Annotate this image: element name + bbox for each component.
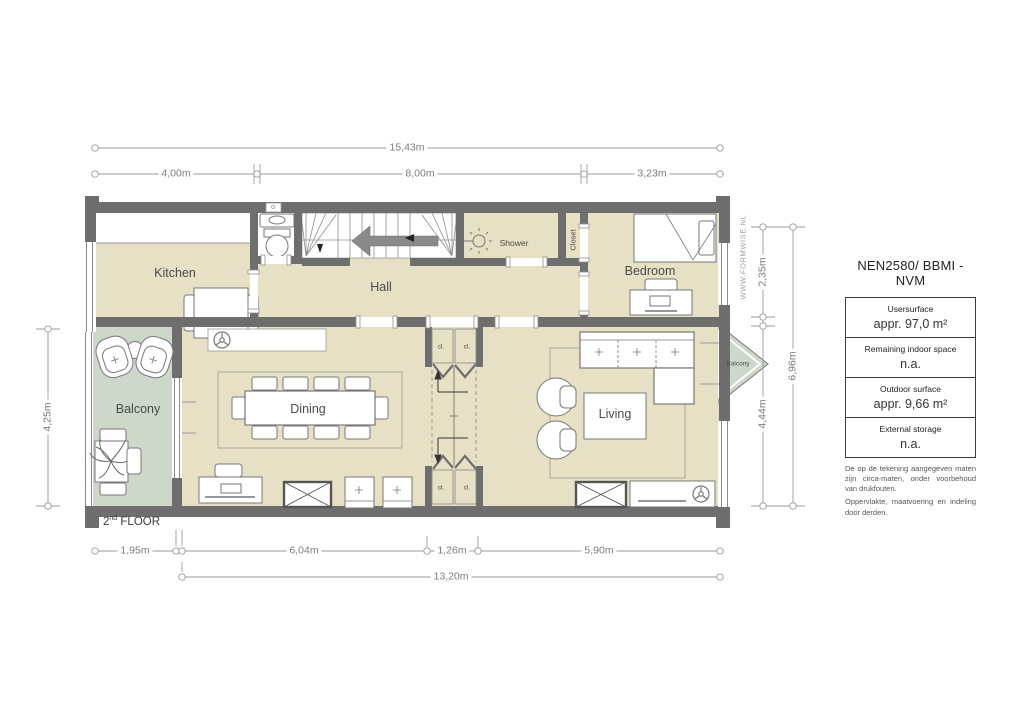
room-label-kitchen: Kitchen — [154, 266, 196, 280]
closet-label-cl: cl. — [464, 485, 471, 492]
cabinet — [630, 481, 715, 507]
lounge-chair — [537, 378, 576, 416]
closet-label-cl: cl. — [464, 344, 471, 351]
room-label-closet: Closet — [569, 229, 578, 250]
patio-chair-small — [100, 429, 126, 441]
corner-block — [85, 196, 99, 213]
legend-table: Usersurface appr. 97,0 m² Remaining indo… — [845, 297, 976, 458]
closet-label-cl: cl. — [438, 344, 445, 351]
legend-panel: NEN2580/ BBMI - NVM Usersurface appr. 97… — [845, 258, 976, 521]
floorplan-page: 15,43m 4,00m 8,00m 3,23m 4,25m 2,35m 4,4… — [0, 0, 1024, 724]
room-label-living: Living — [599, 407, 632, 421]
dim-bottom-seg-4: 5,90m — [581, 545, 616, 556]
balcony-railing — [84, 332, 93, 506]
room-label-dining: Dining — [290, 402, 325, 416]
dim-top-seg-1: 4,00m — [158, 168, 193, 179]
radiator — [576, 482, 626, 507]
dim-right-seg-2: 4,44m — [757, 396, 768, 431]
corner-block — [716, 196, 730, 213]
watermark: WWW.FORMWISE.NL — [739, 215, 748, 300]
dim-right-total: 6,96m — [787, 348, 798, 383]
room-label-shower: Shower — [500, 238, 529, 248]
wall-fixture — [266, 203, 281, 212]
legend-row-usersurface: Usersurface appr. 97,0 m² — [846, 298, 975, 337]
living-window — [718, 421, 731, 507]
dim-bottom-seg-2: 6,04m — [286, 545, 321, 556]
floor-title: 2nd FLOOR — [103, 515, 160, 528]
pillow — [699, 221, 714, 255]
legend-disclaimer: De op de tekening aangegeven maten zijn … — [845, 464, 976, 518]
corner-block — [716, 506, 730, 528]
dim-bottom-seg-1: 1,95m — [117, 545, 152, 556]
legend-title: NEN2580/ BBMI - NVM — [845, 258, 976, 288]
dim-bottom-seg-3: 1,26m — [434, 545, 469, 556]
patio-chair-small — [100, 483, 126, 495]
legend-row-external-storage: External storage n.a. — [846, 417, 975, 457]
balcony-door-window — [172, 378, 182, 478]
lounge-chair — [537, 421, 576, 459]
dim-left: 4,25m — [42, 399, 53, 434]
room-label-balcony-right: Balcony — [726, 361, 749, 368]
dim-top-seg-2: 8,00m — [402, 168, 437, 179]
kitchen-window — [83, 242, 96, 332]
legend-row-remaining-indoor: Remaining indoor space n.a. — [846, 337, 975, 377]
corner-block — [85, 506, 99, 528]
closet-label-cl: cl. — [438, 485, 445, 492]
room-label-hall: Hall — [370, 280, 392, 294]
legend-row-outdoor-surface: Outdoor surface appr. 9,66 m² — [846, 377, 975, 417]
room-label-balcony-left: Balcony — [116, 402, 160, 416]
dim-top-seg-3: 3,23m — [634, 168, 669, 179]
bedroom-window — [718, 243, 731, 305]
dim-top-total: 15,43m — [386, 142, 427, 153]
dim-bottom-total: 13,20m — [430, 571, 471, 582]
dim-right-seg-1: 2,35m — [757, 254, 768, 289]
patio-chair-small — [127, 448, 141, 474]
kitchen-counter — [96, 213, 250, 243]
radiator — [284, 482, 331, 507]
room-label-bedroom: Bedroom — [625, 264, 676, 278]
